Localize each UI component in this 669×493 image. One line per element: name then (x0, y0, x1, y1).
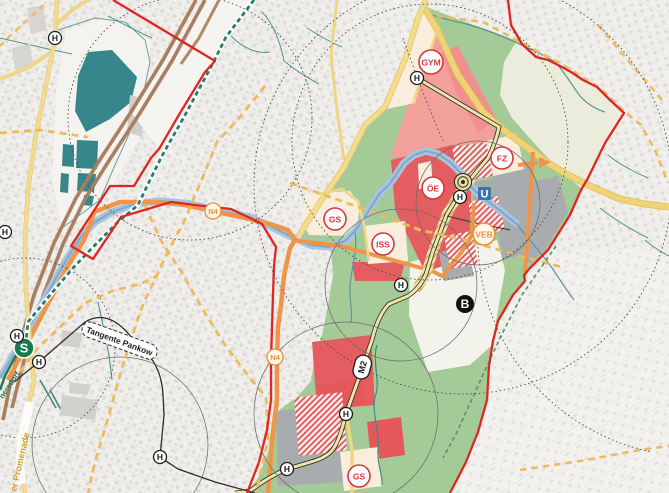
svg-text:ISS: ISS (376, 240, 390, 250)
svg-text:N4: N4 (208, 207, 218, 216)
svg-text:H: H (157, 452, 163, 462)
svg-text:VEB: VEB (475, 230, 492, 240)
svg-text:H: H (398, 280, 404, 290)
svg-text:H: H (343, 409, 349, 419)
svg-text:ÖE: ÖE (427, 184, 440, 194)
svg-text:H: H (457, 192, 463, 202)
svg-text:H: H (52, 33, 58, 43)
svg-text:B: B (461, 297, 470, 311)
svg-text:H: H (36, 357, 42, 367)
svg-text:GYM: GYM (421, 58, 440, 68)
svg-text:H: H (414, 73, 420, 83)
svg-text:H: H (14, 331, 20, 341)
svg-text:H: H (2, 227, 8, 237)
svg-text:N4: N4 (270, 353, 280, 362)
svg-text:S: S (20, 341, 29, 356)
svg-text:U: U (481, 189, 489, 201)
svg-text:GS: GS (353, 472, 366, 482)
svg-text:FZ: FZ (497, 154, 507, 164)
svg-text:GS: GS (329, 215, 342, 225)
svg-text:H: H (284, 464, 290, 474)
